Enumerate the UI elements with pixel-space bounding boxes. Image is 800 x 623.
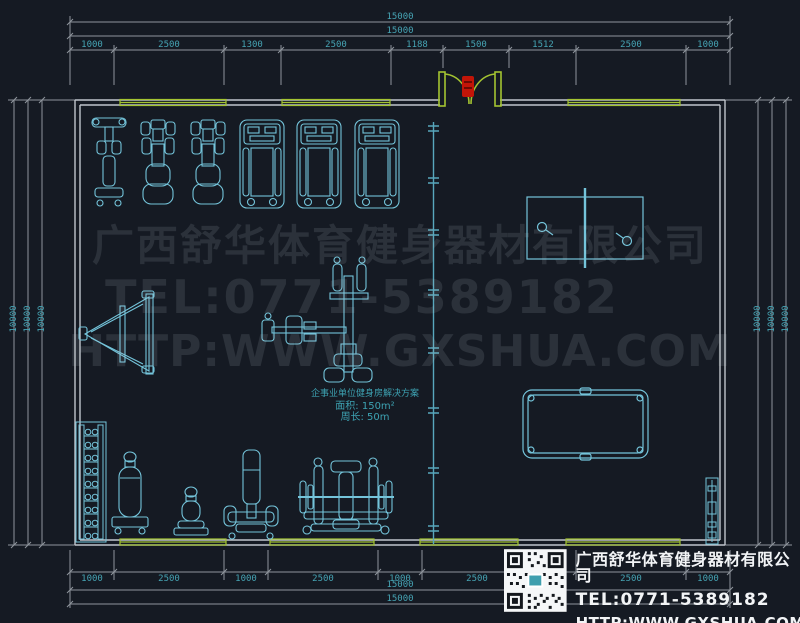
dim-label: 15000: [378, 580, 422, 590]
entrance-door: [439, 72, 501, 106]
dim-label: 1000: [224, 574, 268, 584]
qr-code: [504, 549, 567, 612]
stepper-stool: [174, 487, 208, 535]
bench-press: [298, 458, 394, 534]
dim-label: 1512: [521, 40, 565, 50]
recumbent-bike: [141, 120, 175, 204]
info-company: 广西舒华体育健身器材有限公司: [576, 552, 800, 584]
dim-label: 2500: [147, 40, 191, 50]
dim-label: 2500: [609, 40, 653, 50]
dim-label: 2500: [301, 574, 345, 584]
table-tennis-table: [527, 188, 643, 268]
dim-label: 10000: [767, 297, 777, 341]
punching-bag: [112, 452, 148, 534]
company-info-panel: 广西舒华体育健身器材有限公司 TEL:0771-5389182 HTTP:WWW…: [504, 549, 800, 623]
billiard-table: [523, 388, 648, 460]
vertical-trainer: [224, 450, 278, 539]
dim-label: 1500: [454, 40, 498, 50]
outer-wall: [75, 100, 725, 545]
floorplan-linework: [0, 0, 800, 623]
dim-label: 2500: [455, 574, 499, 584]
dim-label: 15000: [378, 26, 422, 36]
dim-label: 1300: [230, 40, 274, 50]
dim-label: 1000: [686, 40, 730, 50]
dim-label: 15000: [378, 594, 422, 604]
room-label-perimeter: 周长: 50m: [285, 408, 445, 423]
treadmill: [240, 120, 284, 208]
treadmill: [297, 120, 341, 208]
multi-station-trainer: [262, 257, 372, 382]
dim-label: 10000: [37, 297, 47, 341]
cue-rack: [706, 478, 718, 544]
dim-label: 1000: [70, 40, 114, 50]
info-tel: TEL:0771-5389182: [576, 592, 800, 609]
dim-label: 2500: [314, 40, 358, 50]
dim-label: 2500: [147, 574, 191, 584]
partition-wall: [428, 122, 439, 544]
sit-up-bench: [79, 291, 154, 374]
recumbent-bike: [191, 120, 225, 204]
cardio-equipment: [92, 118, 399, 208]
elliptical-trainer: [92, 118, 126, 206]
dim-label: 1000: [70, 574, 114, 584]
treadmill: [355, 120, 399, 208]
dim-label: 10000: [753, 297, 763, 341]
door-marker: [462, 76, 474, 97]
info-url: HTTP:WWW.GXSHUA.COM: [576, 616, 800, 623]
dim-label: 10000: [9, 297, 19, 341]
cad-floorplan: 15000 15000 1000 2500 1300 2500 1188 150…: [0, 0, 800, 623]
dim-label: 10000: [781, 297, 791, 341]
dim-label: 10000: [23, 297, 33, 341]
dim-label: 1188: [395, 40, 439, 50]
dim-label: 15000: [378, 12, 422, 22]
